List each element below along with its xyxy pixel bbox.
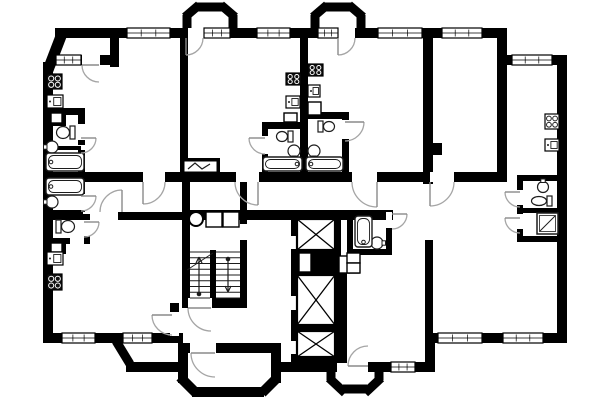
- washbasin-icon: [538, 182, 549, 193]
- sink-tap: [288, 101, 290, 103]
- toilet-tank: [56, 220, 61, 233]
- floor-plan-canvas: [0, 0, 600, 400]
- duct-box: [347, 253, 360, 263]
- toilet-icon: [62, 221, 75, 233]
- door-opening: [430, 172, 454, 182]
- washbasin-icon: [288, 145, 300, 157]
- toilet-icon: [324, 122, 335, 132]
- door-opening: [517, 214, 523, 229]
- duct-box: [299, 253, 311, 272]
- wall: [180, 38, 188, 174]
- door-opening: [82, 55, 100, 65]
- wall: [210, 250, 216, 298]
- washbasin-icon: [308, 145, 320, 157]
- wall: [178, 343, 188, 383]
- toilet-tank: [547, 196, 552, 206]
- duct-box: [51, 113, 62, 123]
- wall: [43, 210, 83, 214]
- wall: [182, 182, 190, 308]
- wall: [341, 273, 347, 363]
- stair-start-dot: [226, 257, 231, 262]
- door-opening: [188, 298, 212, 308]
- duct-box: [308, 102, 321, 115]
- wall: [425, 240, 433, 343]
- door-opening: [338, 28, 355, 38]
- door-opening: [143, 172, 165, 182]
- wall: [517, 175, 563, 181]
- door-opening: [188, 28, 204, 38]
- toilet-icon: [277, 132, 288, 142]
- wall: [517, 236, 563, 242]
- garbage-chute: [189, 212, 203, 226]
- washbasin-tap: [382, 241, 386, 245]
- washbasin-tap: [44, 200, 48, 204]
- sink-tap: [49, 101, 51, 103]
- sink-tap: [49, 258, 51, 260]
- duct-box: [284, 113, 297, 122]
- wall: [279, 362, 337, 372]
- toilet-tank: [318, 121, 323, 132]
- door-opening: [190, 343, 216, 353]
- duct-box: [206, 212, 222, 227]
- washbasin-tap: [541, 179, 545, 183]
- toilet-icon: [57, 127, 70, 139]
- washbasin-tap: [44, 145, 48, 149]
- duct-box: [51, 243, 62, 252]
- wall: [118, 212, 184, 220]
- wall: [110, 28, 119, 67]
- wall: [425, 343, 435, 372]
- toilet-icon: [532, 197, 547, 206]
- floor-plan: [0, 0, 600, 400]
- door-opening: [386, 212, 392, 228]
- washbasin-icon: [46, 196, 58, 208]
- wall: [497, 28, 507, 182]
- wall: [43, 214, 90, 220]
- duct-box: [347, 263, 360, 273]
- duct-box: [223, 212, 239, 227]
- toilet-tank: [70, 126, 75, 139]
- wall: [423, 143, 442, 155]
- wall: [347, 210, 353, 255]
- toilet-tank: [288, 131, 293, 142]
- wall: [300, 38, 308, 172]
- door-opening: [236, 172, 259, 182]
- sink-tap: [310, 90, 312, 92]
- washbasin-icon: [46, 141, 58, 153]
- wall: [192, 387, 264, 397]
- door-opening: [240, 224, 247, 240]
- door-opening: [342, 120, 349, 139]
- wall: [557, 55, 567, 343]
- electric-panel: [184, 161, 217, 172]
- stair-start-dot: [197, 292, 202, 297]
- sink-tap: [547, 144, 549, 146]
- wall: [126, 362, 183, 372]
- washbasin-icon: [371, 237, 383, 249]
- door-opening: [352, 172, 377, 182]
- wall: [423, 38, 433, 184]
